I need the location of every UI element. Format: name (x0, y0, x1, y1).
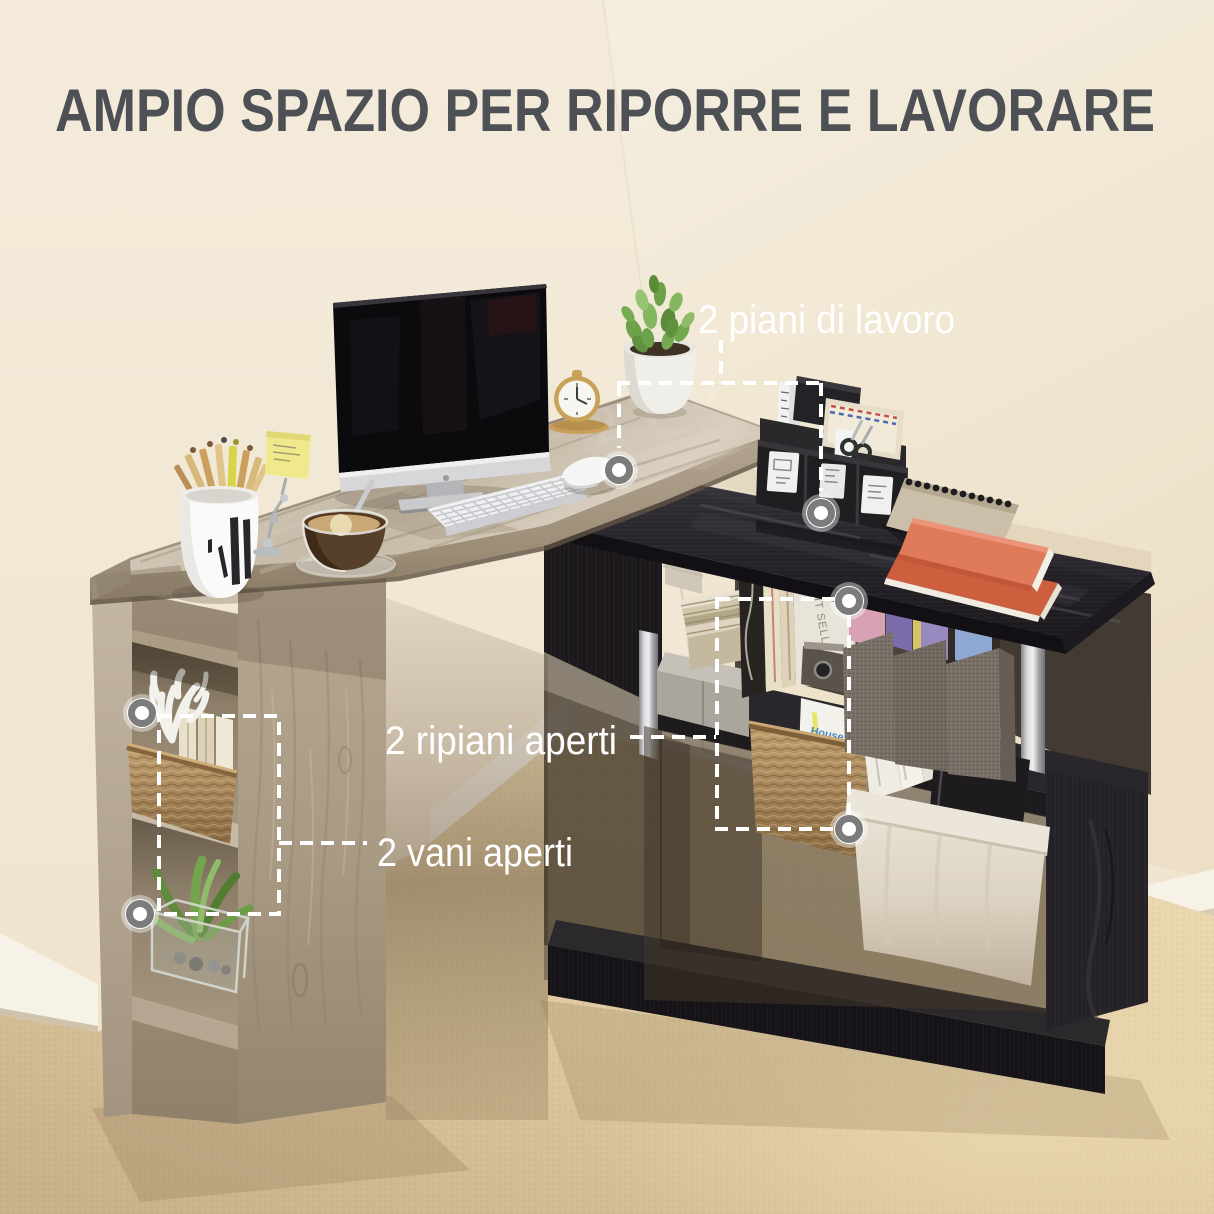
svg-text:2 piani di lavoro: 2 piani di lavoro (698, 298, 955, 342)
svg-text:AMPIO SPAZIO PER RIPORRE E LAV: AMPIO SPAZIO PER RIPORRE E LAVORARE (55, 77, 1155, 144)
svg-text:2 ripiani aperti: 2 ripiani aperti (385, 719, 617, 763)
svg-text:2 vani aperti: 2 vani aperti (377, 831, 573, 875)
